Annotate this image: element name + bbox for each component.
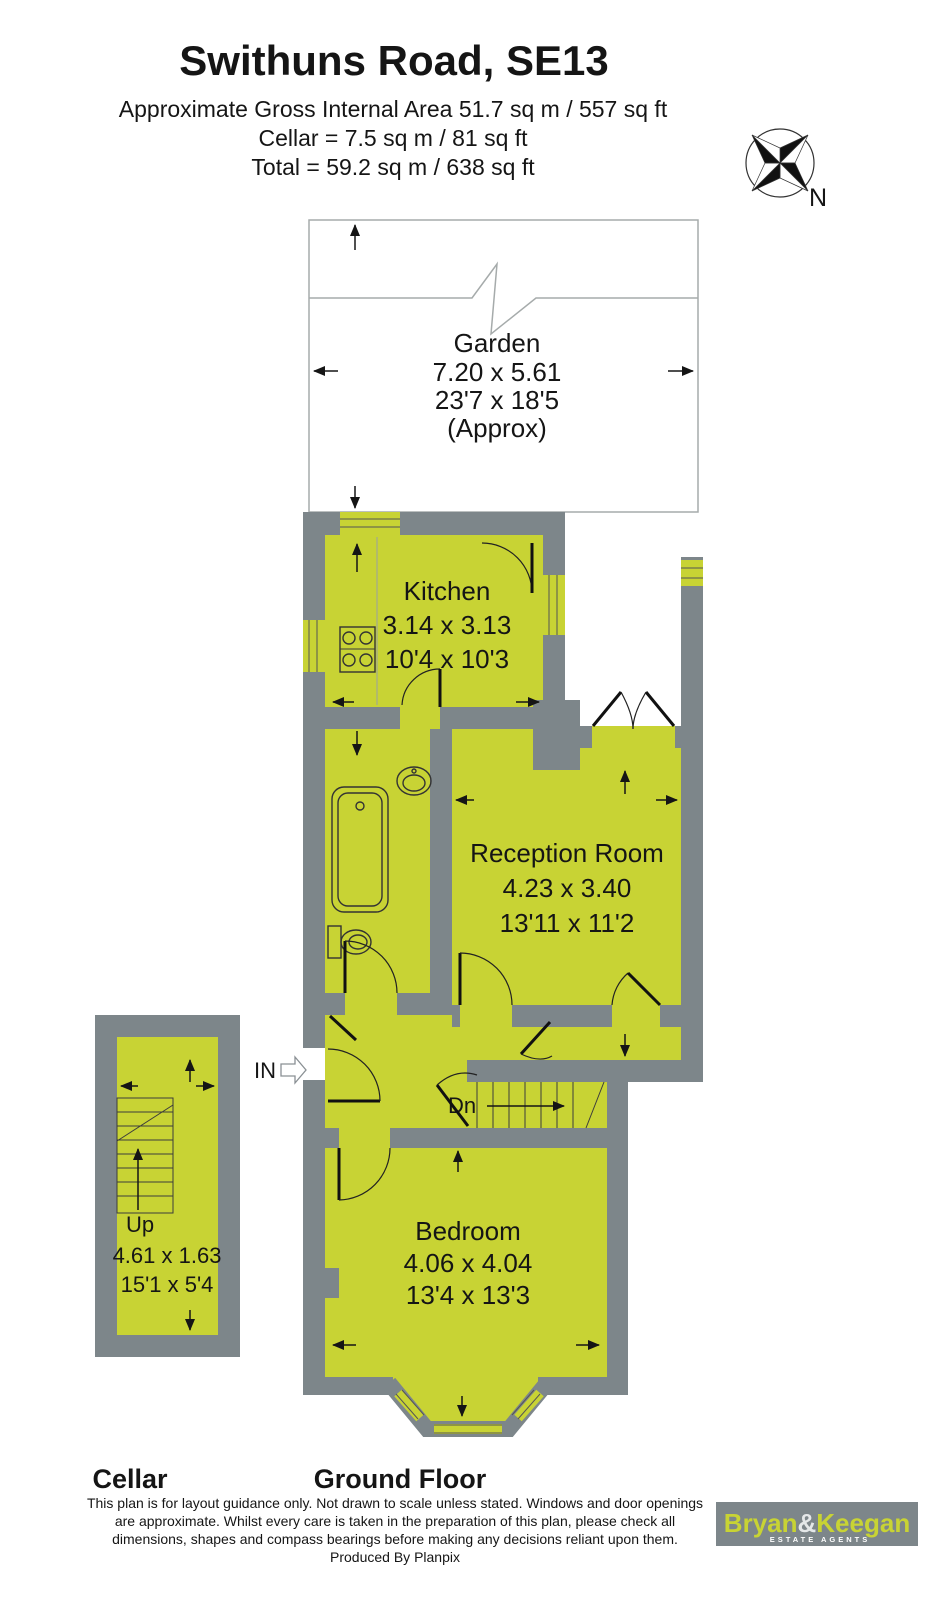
entrance-opening <box>303 1048 325 1080</box>
svg-text:Bryan&Keegan: Bryan&Keegan <box>724 1508 910 1538</box>
brand-tagline: ESTATE AGENTS <box>770 1535 871 1544</box>
compass-north-label: N <box>809 184 827 212</box>
disclaimer-line-3: dimensions, shapes and compass bearings … <box>112 1531 678 1547</box>
garden-dim-imperial: 23'7 x 18'5 <box>435 385 559 415</box>
cellar-up-label: Up <box>126 1212 154 1237</box>
brand-amp: & <box>798 1508 817 1538</box>
bedroom-dim-imperial: 13'4 x 13'3 <box>406 1280 530 1310</box>
garden-approx-note: (Approx) <box>447 413 547 443</box>
garden-dim-metric: 7.20 x 5.61 <box>433 357 562 387</box>
kitchen-dim-imperial: 10'4 x 10'3 <box>385 644 509 674</box>
kitchen-label: Kitchen <box>404 576 491 606</box>
bedroom-label: Bedroom <box>415 1216 521 1246</box>
garden-area: Garden 7.20 x 5.61 23'7 x 18'5 (Approx) <box>309 220 698 512</box>
reception-dim-metric: 4.23 x 3.40 <box>503 873 632 903</box>
cellar-dim-imperial: 15'1 x 5'4 <box>121 1272 214 1297</box>
area-line-2: Cellar = 7.5 sq m / 81 sq ft <box>258 125 528 151</box>
garden-label: Garden <box>454 328 541 358</box>
floor-label-cellar: Cellar <box>92 1464 168 1494</box>
reception-dim-imperial: 13'11 x 11'2 <box>500 908 635 938</box>
floorplan-page: Swithuns Road, SE13 Approximate Gross In… <box>0 0 927 1600</box>
brand-part2: Keegan <box>816 1508 910 1538</box>
page-title: Swithuns Road, SE13 <box>179 37 608 84</box>
brand-part1: Bryan <box>724 1508 798 1538</box>
brand-logo: Bryan&Keegan ESTATE AGENTS <box>716 1502 918 1546</box>
area-line-1: Approximate Gross Internal Area 51.7 sq … <box>119 96 668 122</box>
cellar-dim-metric: 4.61 x 1.63 <box>113 1243 222 1268</box>
bedroom-dim-metric: 4.06 x 4.04 <box>404 1248 533 1278</box>
disclaimer-line-4: Produced By Planpix <box>330 1549 460 1565</box>
floor-label-ground: Ground Floor <box>314 1464 487 1494</box>
entrance-label: IN <box>254 1058 276 1083</box>
reception-label: Reception Room <box>470 838 664 868</box>
kitchen-dim-metric: 3.14 x 3.13 <box>383 610 512 640</box>
disclaimer-line-1: This plan is for layout guidance only. N… <box>87 1495 703 1511</box>
area-line-3: Total = 59.2 sq m / 638 sq ft <box>251 154 535 180</box>
floorplan-svg: Swithuns Road, SE13 Approximate Gross In… <box>0 0 927 1600</box>
disclaimer-line-2: are approximate. Whilst every care is ta… <box>115 1513 675 1529</box>
